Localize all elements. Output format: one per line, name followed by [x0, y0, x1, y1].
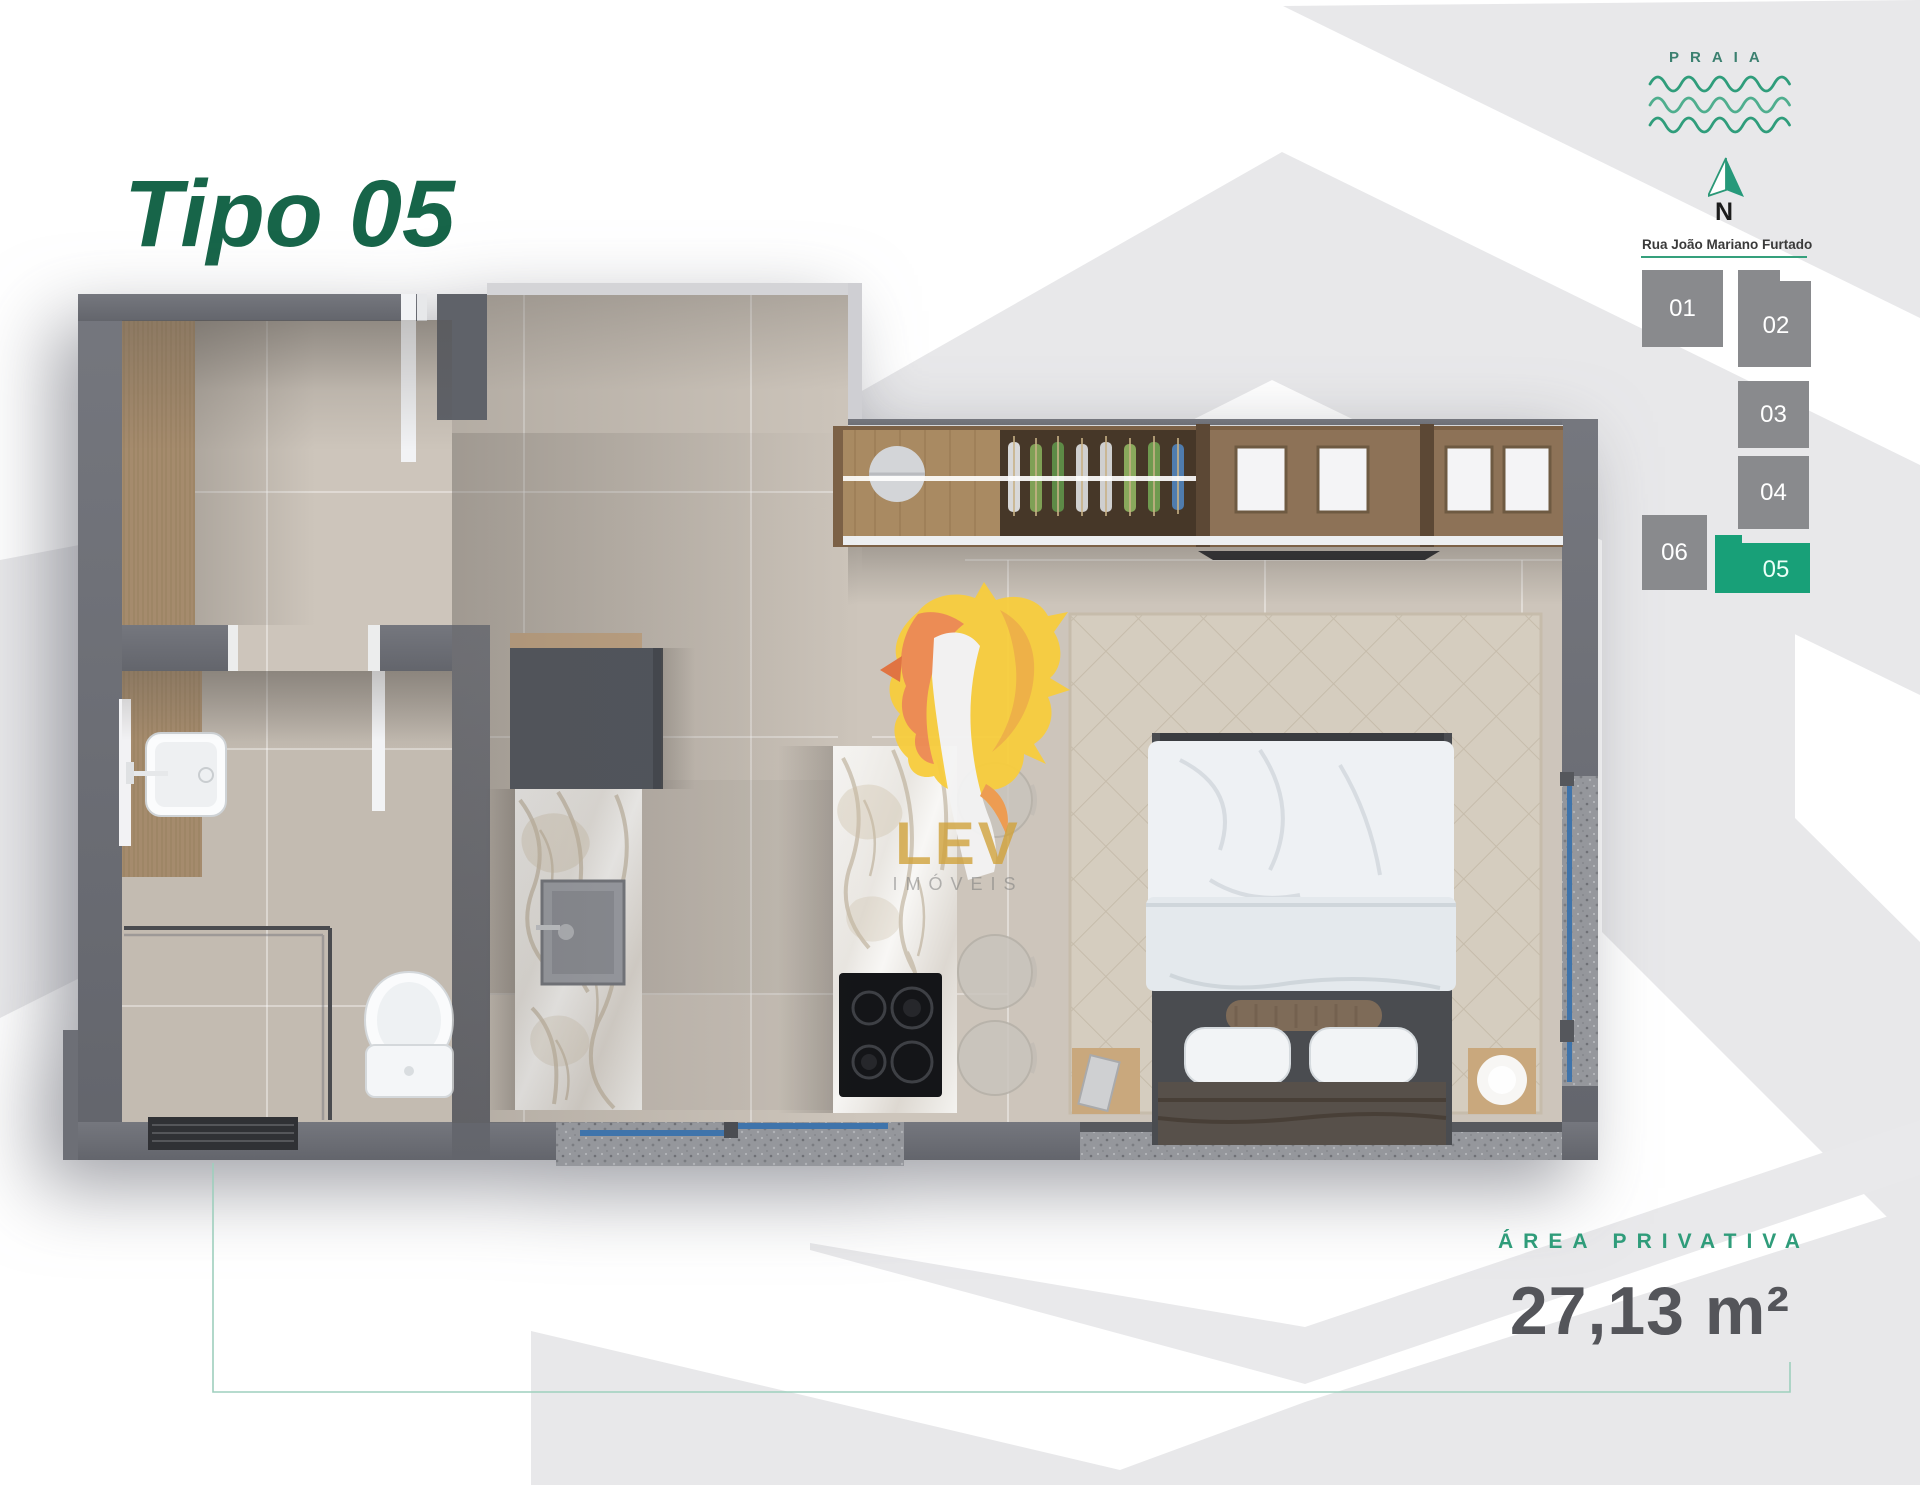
- svg-text:LEV: LEV: [895, 810, 1021, 877]
- svg-text:02: 02: [1763, 312, 1790, 339]
- svg-text:05: 05: [1763, 556, 1790, 583]
- svg-text:IMÓVEIS: IMÓVEIS: [892, 873, 1023, 894]
